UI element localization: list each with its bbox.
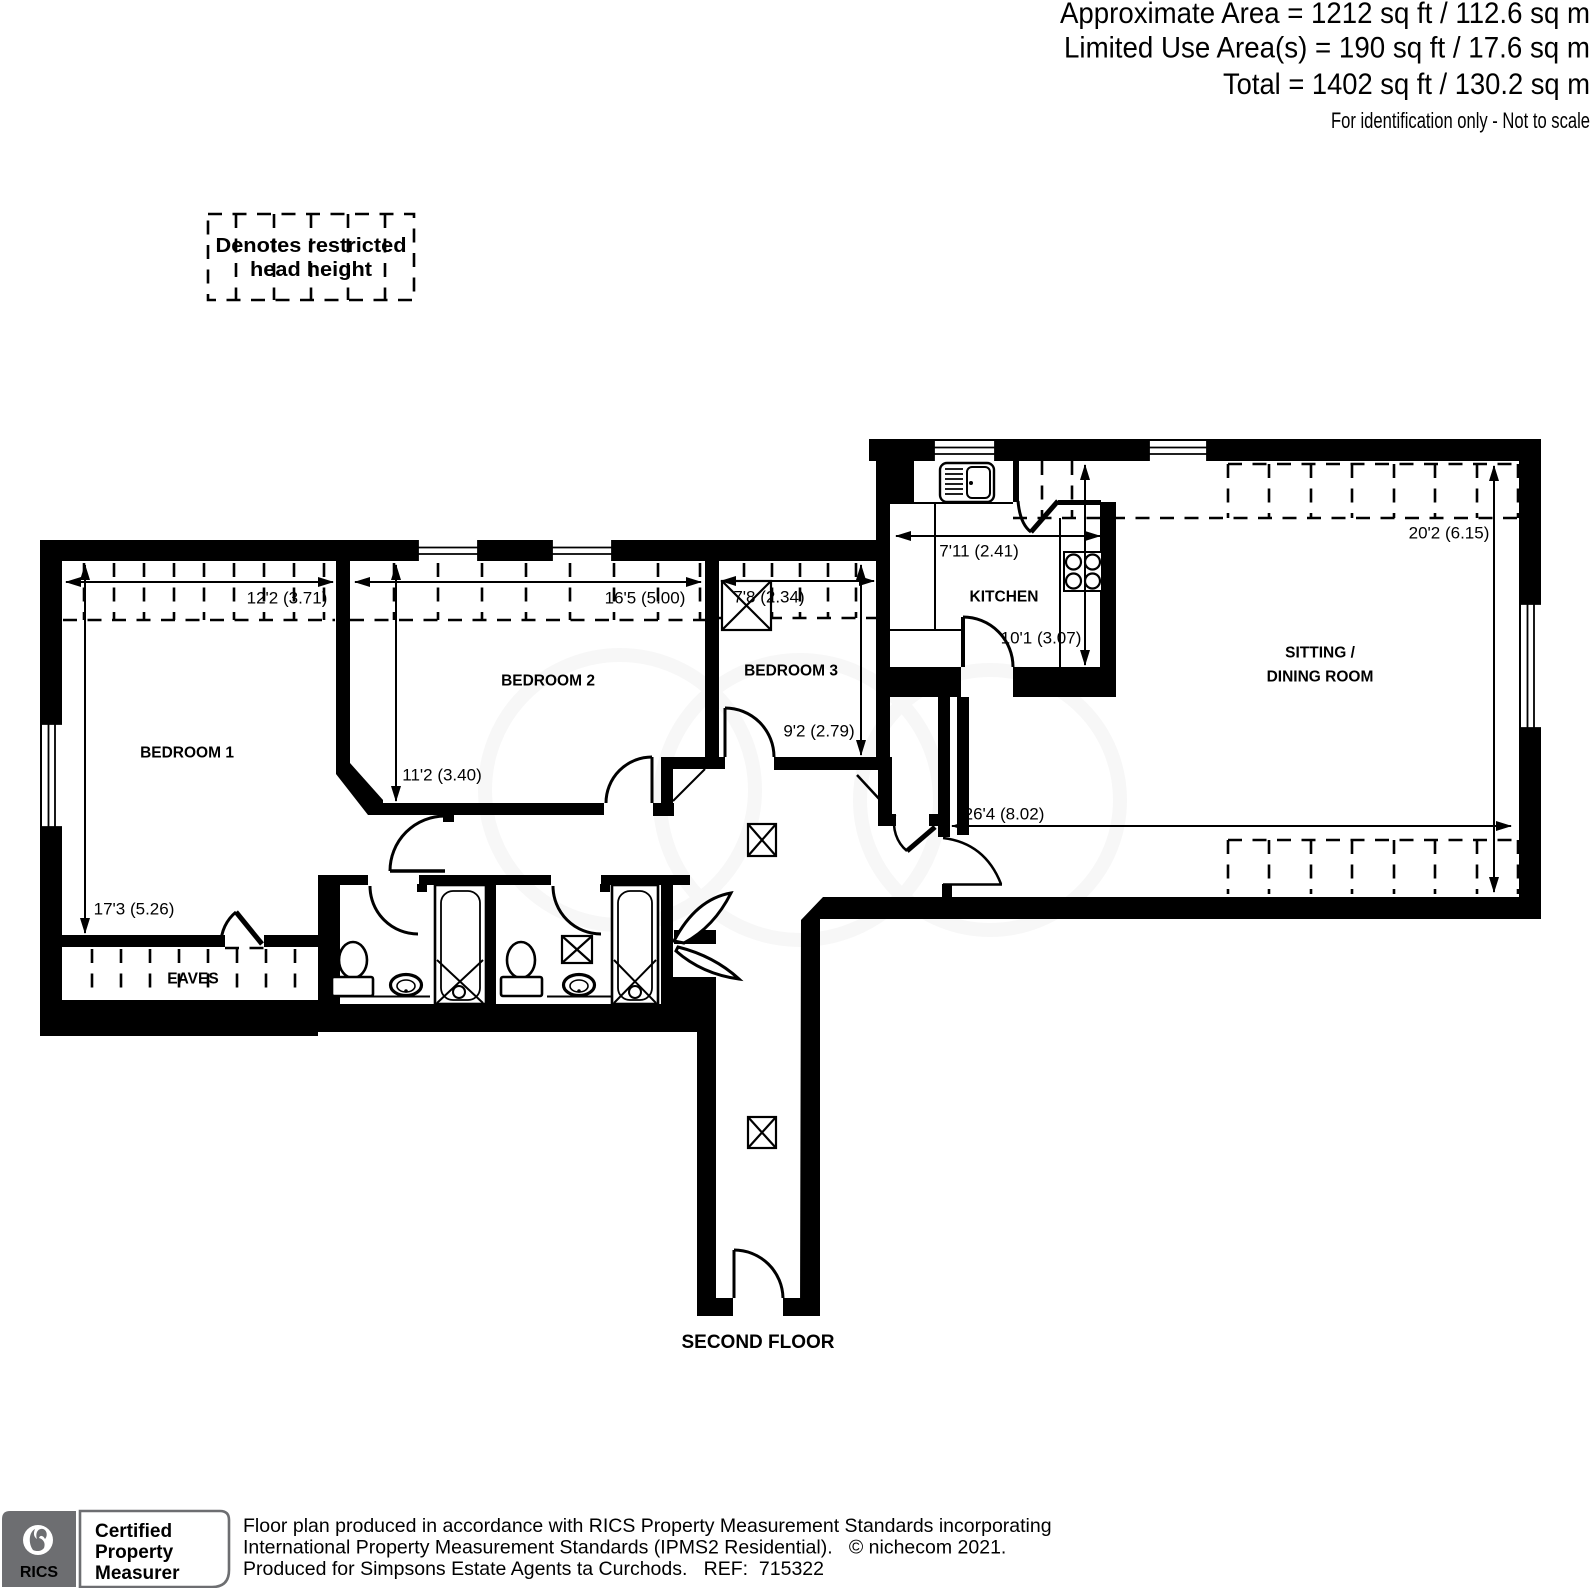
- svg-text:20'2 (6.15): 20'2 (6.15): [1409, 524, 1490, 543]
- svg-text:Floor plan produced in accorda: Floor plan produced in accordance with R…: [243, 1515, 1052, 1537]
- svg-text:7'8 (2.34): 7'8 (2.34): [733, 588, 804, 607]
- svg-text:9'2 (2.79): 9'2 (2.79): [783, 722, 854, 741]
- svg-text:7'11 (2.41): 7'11 (2.41): [939, 542, 1018, 561]
- svg-text:KITCHEN: KITCHEN: [970, 589, 1039, 606]
- svg-text:10'1 (3.07): 10'1 (3.07): [1001, 629, 1082, 648]
- svg-text:Measurer: Measurer: [95, 1563, 180, 1584]
- svg-text:Produced for Simpsons Estate A: Produced for Simpsons Estate Agents ta C…: [243, 1558, 824, 1580]
- svg-text:16'5 (5.00): 16'5 (5.00): [605, 589, 686, 608]
- svg-text:BEDROOM 1: BEDROOM 1: [140, 745, 234, 762]
- svg-text:RICS: RICS: [20, 1564, 59, 1581]
- svg-text:Property: Property: [95, 1542, 174, 1563]
- svg-text:26'4 (8.02): 26'4 (8.02): [964, 805, 1045, 824]
- svg-text:head height: head height: [250, 259, 372, 281]
- svg-text:Approximate Area = 1212 sq ft: Approximate Area = 1212 sq ft / 112.6 sq…: [1060, 0, 1590, 30]
- svg-text:12'2 (3.71): 12'2 (3.71): [247, 589, 328, 608]
- svg-text:SITTING /: SITTING /: [1285, 645, 1355, 662]
- svg-text:SECOND FLOOR: SECOND FLOOR: [681, 1332, 834, 1353]
- svg-text:International Property Measure: International Property Measurement Stand…: [243, 1537, 1006, 1559]
- svg-text:17'3 (5.26): 17'3 (5.26): [94, 900, 175, 919]
- svg-text:BEDROOM 3: BEDROOM 3: [744, 663, 838, 680]
- svg-text:Total = 1402 sq ft / 130.2 sq: Total = 1402 sq ft / 130.2 sq m: [1223, 68, 1590, 101]
- svg-text:11'2 (3.40): 11'2 (3.40): [402, 766, 481, 785]
- svg-text:BEDROOM 2: BEDROOM 2: [501, 673, 595, 690]
- svg-text:Certified: Certified: [95, 1521, 172, 1542]
- svg-text:EAVES: EAVES: [167, 971, 218, 988]
- svg-text:DINING ROOM: DINING ROOM: [1267, 669, 1374, 686]
- svg-text:Limited Use Area(s) = 190 sq f: Limited Use Area(s) = 190 sq ft / 17.6 s…: [1064, 32, 1590, 65]
- svg-text:Denotes restricted: Denotes restricted: [216, 235, 407, 257]
- svg-text:For identification only - Not: For identification only - Not to scale: [1331, 108, 1590, 133]
